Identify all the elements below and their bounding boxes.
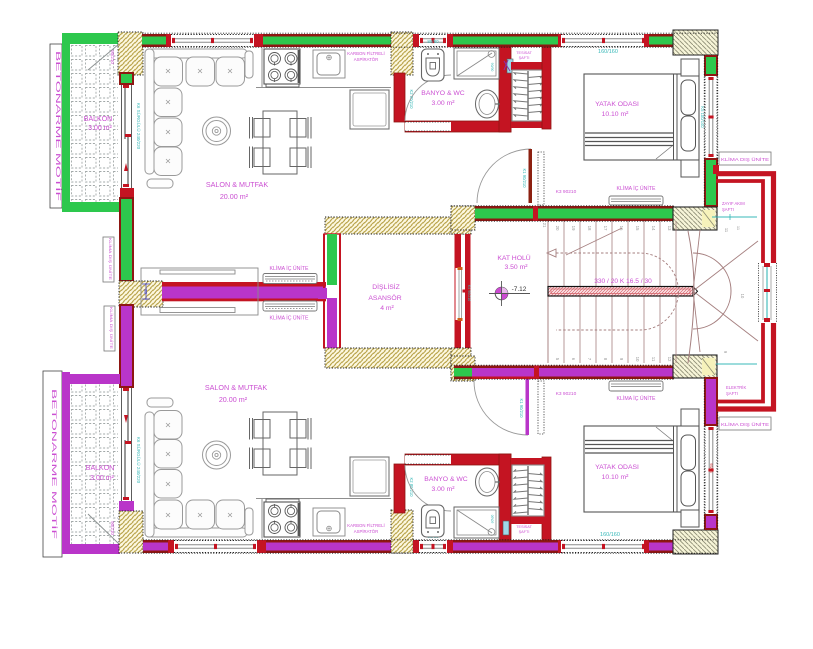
svg-text:3.00 m²: 3.00 m²: [90, 475, 114, 482]
svg-text:10: 10: [740, 294, 745, 299]
svg-text:KLİMA DIŞ ÜNİTE: KLİMA DIŞ ÜNİTE: [109, 307, 114, 349]
svg-text:K6 SÜRGÜLÜ 240/220: K6 SÜRGÜLÜ 240/220: [136, 103, 142, 150]
svg-text:BETONARME MOTİF: BETONARME MOTİF: [54, 51, 61, 202]
svg-text:KLİMA İÇ ÜNİTE: KLİMA İÇ ÜNİTE: [270, 265, 309, 272]
svg-text:SALON & MUTFAK: SALON & MUTFAK: [205, 383, 268, 392]
svg-text:ZAYIF AKIM: ZAYIF AKIM: [722, 201, 745, 206]
svg-text:BALKON: BALKON: [84, 116, 112, 123]
svg-text:ŞAFTI: ŞAFTI: [519, 56, 530, 60]
svg-text:4 m²: 4 m²: [380, 305, 394, 312]
svg-text:K4 90/210: K4 90/210: [467, 285, 471, 301]
svg-text:160/160: 160/160: [600, 532, 620, 538]
svg-text:20.00 m²: 20.00 m²: [219, 395, 248, 404]
svg-text:17: 17: [603, 226, 608, 231]
svg-text:KLİMA İÇ ÜNİTE: KLİMA İÇ ÜNİTE: [270, 315, 309, 322]
svg-text:K2 80/210: K2 80/210: [409, 89, 414, 109]
svg-text:ASPİRATÖR: ASPİRATÖR: [354, 57, 379, 62]
svg-text:K3 90210: K3 90210: [556, 189, 577, 195]
svg-text:BALKON: BALKON: [86, 465, 114, 472]
svg-text:KLİMA DIŞ ÜNİTE: KLİMA DIŞ ÜNİTE: [721, 421, 769, 428]
svg-text:13: 13: [667, 226, 672, 231]
svg-text:12: 12: [667, 357, 672, 362]
svg-text:38: 38: [142, 289, 148, 295]
svg-text:KLİMA İÇ ÜNİTE: KLİMA İÇ ÜNİTE: [617, 395, 656, 402]
svg-text:YATAK ODASI: YATAK ODASI: [595, 464, 639, 471]
svg-text:3.00 m²: 3.00 m²: [88, 125, 112, 132]
svg-text:ASANSÖR: ASANSÖR: [368, 294, 401, 302]
svg-text:BETONARME MOTİF: BETONARME MOTİF: [50, 389, 57, 540]
svg-text:21: 21: [542, 223, 547, 228]
svg-text:KARBON FİLTRELİ: KARBON FİLTRELİ: [347, 51, 384, 56]
svg-text:ŞAFTI: ŞAFTI: [722, 207, 734, 212]
svg-text:20: 20: [555, 226, 560, 231]
svg-text:11: 11: [724, 228, 729, 233]
svg-text:BANYO & WC: BANYO & WC: [424, 476, 468, 483]
svg-text:SALON & MUTFAK: SALON & MUTFAK: [206, 180, 269, 189]
svg-text:K1 90/210: K1 90/210: [519, 398, 524, 418]
svg-text:-7.12: -7.12: [512, 286, 527, 293]
svg-text:330 / 20 K 16.5 / 30: 330 / 20 K 16.5 / 30: [594, 278, 652, 285]
svg-text:K6 SÜRGÜLÜ 240/220: K6 SÜRGÜLÜ 240/220: [136, 437, 142, 484]
svg-text:K1 90/210: K1 90/210: [522, 168, 527, 188]
svg-text:DİŞLİSİZ: DİŞLİSİZ: [372, 282, 400, 291]
svg-text:160/160: 160/160: [598, 49, 618, 55]
svg-text:11: 11: [651, 357, 656, 362]
svg-text:K2 80/210: K2 80/210: [409, 477, 414, 497]
svg-text:20.00 m²: 20.00 m²: [220, 192, 249, 201]
svg-text:ELEKTRİK: ELEKTRİK: [726, 385, 746, 390]
svg-text:YATAK ODASI: YATAK ODASI: [595, 101, 639, 108]
svg-text:18: 18: [587, 226, 592, 231]
svg-text:15: 15: [635, 226, 640, 231]
svg-text:14: 14: [651, 226, 656, 231]
svg-text:3.00 m²: 3.00 m²: [431, 100, 455, 107]
svg-text:K3 90210: K3 90210: [556, 391, 577, 397]
svg-text:3.00 m²: 3.00 m²: [431, 486, 455, 493]
svg-text:80/80: 80/80: [427, 39, 439, 44]
svg-text:90/210: 90/210: [110, 50, 115, 64]
svg-text:TESİSAT: TESİSAT: [516, 50, 532, 55]
svg-text:10: 10: [635, 357, 640, 362]
svg-text:BANYO & WC: BANYO & WC: [421, 90, 465, 97]
svg-text:KAT HOLÜ: KAT HOLÜ: [497, 254, 530, 262]
svg-text:ŞAFTI: ŞAFTI: [726, 391, 738, 396]
svg-text:90/90: 90/90: [490, 63, 494, 72]
svg-text:KLİMA İÇ ÜNİTE: KLİMA İÇ ÜNİTE: [617, 185, 656, 192]
svg-text:10.10 m²: 10.10 m²: [602, 111, 630, 118]
svg-text:ASPİRATÖR: ASPİRATÖR: [354, 529, 379, 534]
svg-text:90/210: 90/210: [110, 521, 115, 535]
svg-text:ŞAFTI: ŞAFTI: [519, 530, 530, 534]
svg-text:KLİMA DIŞ ÜNİTE: KLİMA DIŞ ÜNİTE: [108, 238, 113, 280]
svg-text:3.50 m²: 3.50 m²: [504, 264, 528, 271]
svg-text:19: 19: [571, 226, 576, 231]
svg-text:KLİMA DIŞ ÜNİTE: KLİMA DIŞ ÜNİTE: [721, 156, 769, 163]
svg-text:95/95: 95/95: [709, 463, 713, 473]
svg-text:10.10 m²: 10.10 m²: [602, 474, 630, 481]
svg-text:TESİSAT: TESİSAT: [516, 524, 532, 529]
svg-text:KARBON FİLTRELİ: KARBON FİLTRELİ: [347, 523, 384, 528]
